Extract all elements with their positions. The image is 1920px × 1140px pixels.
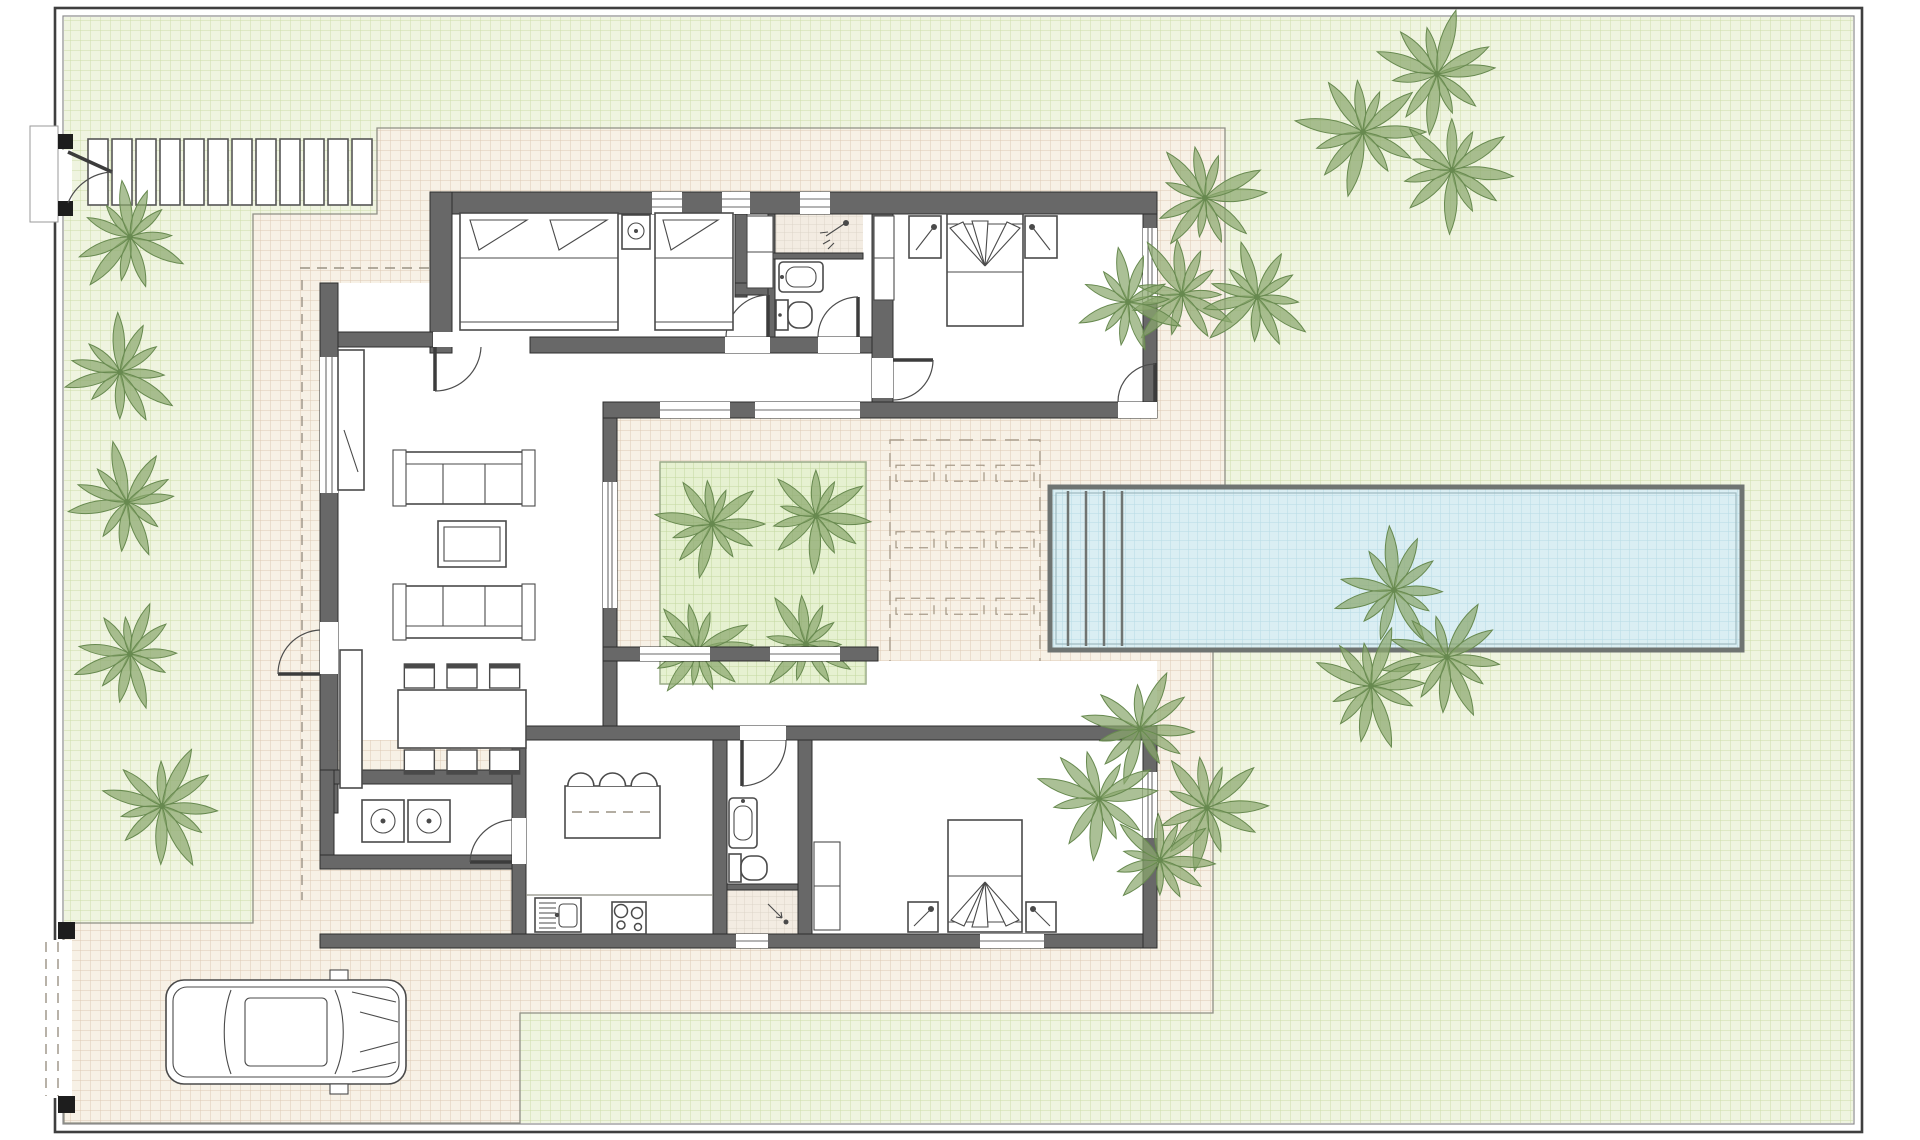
double-bed-ne <box>947 214 1023 326</box>
window-courtyard-north-2 <box>755 402 860 418</box>
sofa-north <box>393 450 535 506</box>
floor-plan-drawing <box>0 0 1920 1140</box>
dining-area <box>398 664 526 775</box>
stepping-stone <box>88 139 108 205</box>
wardrobe-se <box>814 842 840 930</box>
toilet-south <box>729 854 767 882</box>
stepping-stone <box>352 139 372 205</box>
floor-plan-page <box>0 0 1920 1140</box>
kitchen-sink-unit <box>535 898 581 932</box>
washbasin-south <box>729 798 757 848</box>
bedroom-northwest <box>460 213 733 330</box>
double-bed-se <box>948 820 1022 932</box>
wall-utility-west <box>320 770 334 869</box>
window-living-west <box>320 357 338 493</box>
window-courtyard-south-2 <box>770 647 840 661</box>
coffee-table <box>438 521 506 567</box>
gate-post <box>58 1096 75 1113</box>
stepping-stone <box>232 139 252 205</box>
stepping-stone <box>256 139 276 205</box>
wall-nw <box>430 192 452 353</box>
stepping-stone <box>304 139 324 205</box>
gate-post <box>58 922 75 939</box>
gate-post <box>58 134 73 149</box>
stepping-stone <box>328 139 348 205</box>
shower-area-south <box>727 890 798 934</box>
window-bath-south <box>736 934 768 948</box>
window-courtyard-south-1 <box>640 647 710 661</box>
washer-icon <box>362 800 404 842</box>
window-north-1 <box>652 192 682 214</box>
sliding-door-courtyard <box>603 482 617 608</box>
wall-north <box>430 192 1157 214</box>
closet-north <box>747 216 773 288</box>
wall-entry-north <box>338 332 433 347</box>
wall-bath-south-east <box>798 740 812 934</box>
car-roof <box>245 998 327 1066</box>
nightstand-ne-right <box>1025 216 1057 258</box>
nightstand-se-left <box>908 902 938 932</box>
window-north-3 <box>800 192 830 214</box>
stepping-stone <box>208 139 228 205</box>
window-courtyard-north-1 <box>660 402 730 418</box>
kitchen-island <box>565 773 660 838</box>
window-north-2 <box>722 192 750 214</box>
nightstand-ne-left <box>909 216 941 258</box>
wall-south-wing-north <box>526 726 1157 740</box>
hob <box>612 902 646 934</box>
stepping-stone <box>280 139 300 205</box>
bar-stools <box>568 773 657 786</box>
wall-shower-divider-south <box>727 884 798 890</box>
stepping-stone <box>184 139 204 205</box>
wall-shower-divider-north <box>773 253 863 259</box>
nightstand-se-right <box>1026 902 1056 932</box>
car-mirror <box>330 970 348 980</box>
double-bed-nw <box>460 213 618 330</box>
window-se-bedroom <box>980 934 1044 948</box>
driveway-gate <box>46 922 75 1113</box>
sideboard <box>340 650 362 788</box>
stepping-stone <box>160 139 180 205</box>
dryer-icon <box>408 800 450 842</box>
gate-post <box>58 201 73 216</box>
nightstand-nw <box>622 215 650 249</box>
shower-area-north <box>773 214 863 255</box>
tv-unit <box>338 350 364 490</box>
single-bed-nw <box>655 213 733 330</box>
dining-table <box>398 690 526 748</box>
toilet-north <box>776 300 812 330</box>
car <box>166 970 406 1094</box>
washbasin-north <box>779 262 823 292</box>
car-mirror <box>330 1084 348 1094</box>
wall-bath-south-west <box>713 740 727 934</box>
wardrobe-ne <box>874 216 894 300</box>
sofa-south <box>393 584 535 640</box>
